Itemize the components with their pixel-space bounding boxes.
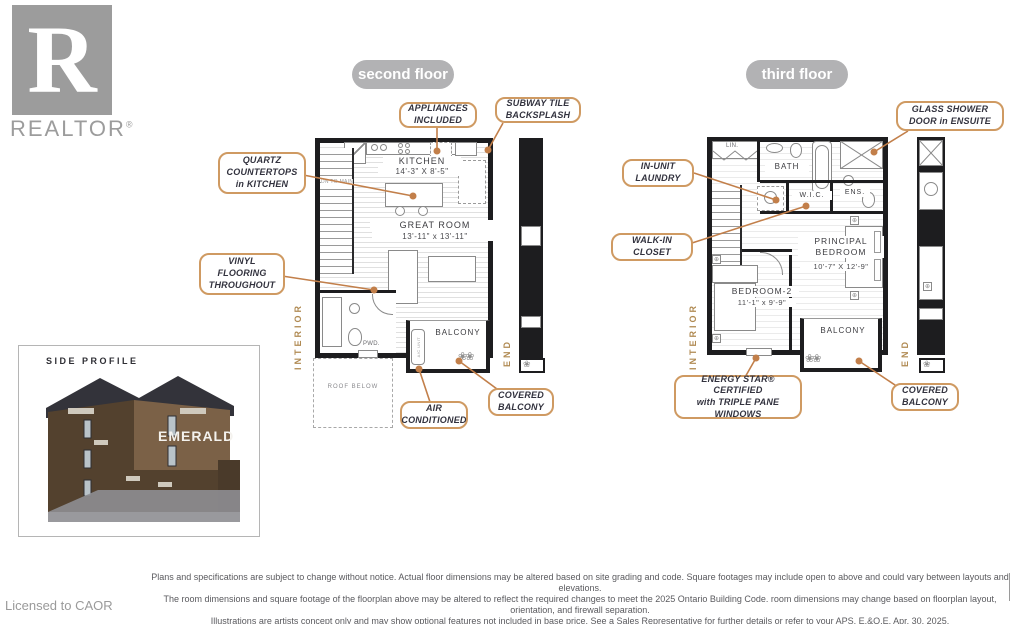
callout-subway-tile: SUBWAY TILE BACKSPLASH xyxy=(495,97,581,123)
end-window xyxy=(521,226,541,246)
licensed-to-text: Licensed to CAOR xyxy=(5,598,113,613)
staircase-second xyxy=(320,148,354,274)
building-name: EMERALD xyxy=(158,428,234,444)
realtor-logo-r: R xyxy=(27,12,96,108)
roof-below-label: ROOF BELOW xyxy=(318,384,388,390)
registered-mark: ® xyxy=(126,120,135,130)
bath-toilet-icon xyxy=(790,143,802,158)
callout-glass-shower: GLASS SHOWER DOOR in ENSUITE xyxy=(896,101,1004,131)
bath-label: BATH xyxy=(765,162,809,172)
plant-icon: ❀❀ xyxy=(458,350,472,363)
island-stool-icon xyxy=(395,206,405,216)
callout-vinyl: VINYL FLOORING THROUGHOUT xyxy=(199,253,285,295)
callout-walk-in-closet: WALK-IN CLOSET xyxy=(611,233,693,261)
end-cabinet xyxy=(919,246,943,300)
wic-label: W.I.C. xyxy=(792,191,832,200)
side-profile-title: SIDE PROFILE xyxy=(46,356,139,366)
stove-burner-icon xyxy=(405,143,410,148)
balcony-second-label: BALCONY xyxy=(428,328,488,338)
mech-closet xyxy=(322,297,342,347)
nightstand-marker-icon: ⊕ xyxy=(712,255,721,264)
washer-icon xyxy=(764,191,777,204)
pwd-label: PWD. xyxy=(363,341,380,347)
hall-wall xyxy=(760,180,884,183)
ac-unit: A/C UNIT xyxy=(411,329,425,365)
principal-bedroom-dims: 10'-7" X 12'-9" xyxy=(800,262,882,271)
island-stool-icon xyxy=(418,206,428,216)
great-room-label: GREAT ROOM xyxy=(370,220,500,232)
bath-wall xyxy=(757,140,760,182)
balcony-third-label: BALCONY xyxy=(813,326,873,336)
disclaimer-text: Plans and specifications are subject to … xyxy=(150,572,1010,624)
great-room-dims: 13'-11" x 13'-11" xyxy=(372,232,498,241)
end-window xyxy=(521,316,541,328)
disclaimer-line-3: Illustrations are artists concept only a… xyxy=(150,616,1010,624)
realtor-wordmark: REALTOR® xyxy=(10,116,135,142)
end-label-third: END xyxy=(900,333,910,367)
callout-appliances: APPLIANCES INCLUDED xyxy=(399,102,477,128)
window xyxy=(358,350,378,358)
plant-icon: ❀ xyxy=(523,359,529,370)
nightstand-marker-icon: ⊕ xyxy=(712,334,721,343)
end-sink-icon xyxy=(924,182,938,196)
plant-icon: ❀ xyxy=(923,359,929,370)
footer-divider xyxy=(1009,573,1010,601)
end-shower xyxy=(919,140,943,166)
nightstand-marker-icon: ⊕ xyxy=(850,291,859,300)
disclaimer-line-2: The room dimensions and square footage o… xyxy=(150,594,1010,616)
stove-burner-icon xyxy=(398,149,403,154)
pillow xyxy=(874,231,881,253)
kitchen-label: KITCHEN xyxy=(383,156,461,168)
stove-burner-icon xyxy=(398,143,403,148)
floorplan-sheet: R REALTOR® second floor third floor KITC… xyxy=(0,0,1024,624)
pwd-toilet-icon xyxy=(348,328,362,346)
triple-pane-window xyxy=(746,348,772,356)
bath-sink-icon xyxy=(766,143,783,153)
bedroom2-headboard xyxy=(712,265,758,283)
principal-bedroom-label: PRINCIPAL BEDROOM xyxy=(798,236,884,258)
plant-icon: ❀❀ xyxy=(805,352,819,365)
roof-below-area xyxy=(313,358,393,428)
callout-in-unit-laundry: IN-UNIT LAUNDRY xyxy=(622,159,694,187)
linen-label: LIN. xyxy=(726,143,738,149)
end-marker-icon: ⊕ xyxy=(923,282,932,291)
sofa-chaise xyxy=(428,256,476,282)
stove-burner-icon xyxy=(405,149,410,154)
end-label-second: END xyxy=(502,333,512,367)
callout-air-conditioned: AIR CONDITIONED xyxy=(400,401,468,429)
glass-shower xyxy=(840,141,883,169)
realtor-logo-icon: R xyxy=(12,5,112,115)
sink-bowl-icon xyxy=(371,144,378,151)
interior-label-second: INTERIOR xyxy=(293,298,303,370)
bedroom2-dims: 11'-1" x 9'-9" xyxy=(728,298,796,307)
wic-wall xyxy=(786,183,789,213)
nightstand-marker-icon: ⊕ xyxy=(850,216,859,225)
ensuite-label: ENS. xyxy=(840,188,870,197)
hall-wall-lower xyxy=(760,211,884,214)
bedroom2-label: BEDROOM-2 xyxy=(725,286,799,297)
pwd-sink-icon xyxy=(349,303,360,314)
stairs-note: DN TO MAIN xyxy=(321,179,353,185)
leader-air xyxy=(419,369,430,402)
callout-covered-balcony-third: COVERED BALCONY xyxy=(891,383,959,411)
pwd-wall xyxy=(320,290,396,293)
pillow xyxy=(874,259,881,281)
bedroom2-wall xyxy=(742,249,792,252)
callout-energy-star: ENERGY STAR® CERTIFIED with TRIPLE PANE … xyxy=(674,375,802,419)
kitchen-dims: 14'-3" X 8'-5" xyxy=(378,167,466,176)
kitchen-island xyxy=(385,183,443,207)
callout-quartz: QUARTZ COUNTERTOPS in KITCHEN xyxy=(218,152,306,194)
sink-bowl-icon xyxy=(380,144,387,151)
callout-covered-balcony-second: COVERED BALCONY xyxy=(488,388,554,416)
badge-second-floor: second floor xyxy=(352,60,454,89)
fridge xyxy=(455,142,477,156)
end-window xyxy=(919,308,943,320)
interior-label-third: INTERIOR xyxy=(688,298,698,370)
badge-third-floor: third floor xyxy=(746,60,848,89)
disclaimer-line-1: Plans and specifications are subject to … xyxy=(150,572,1010,594)
